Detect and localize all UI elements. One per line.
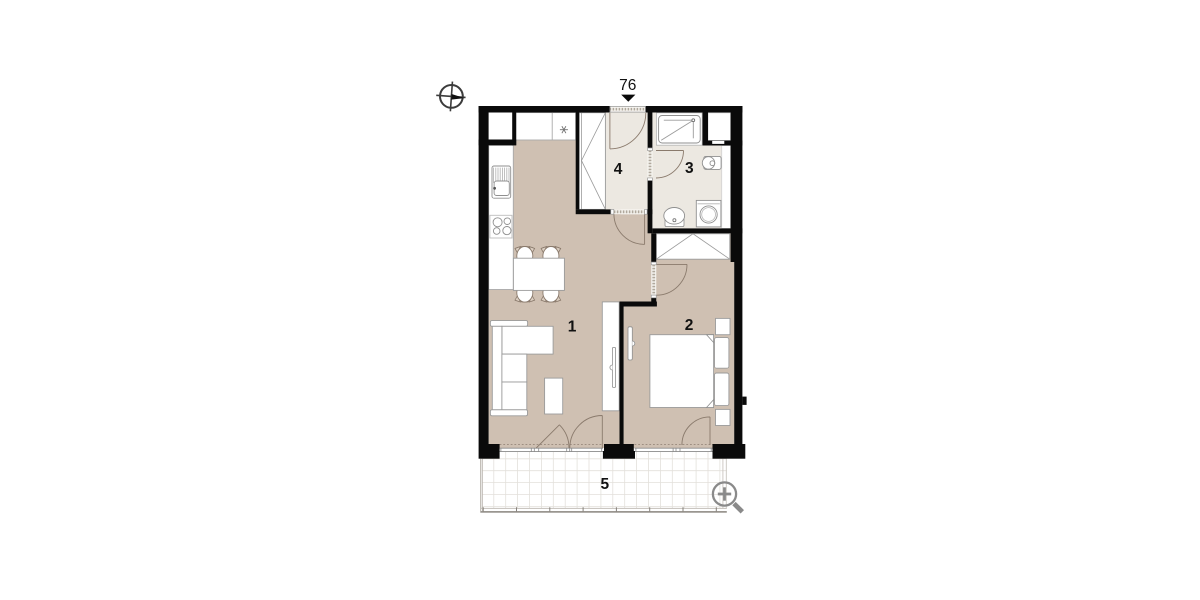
svg-text:1: 1 bbox=[568, 318, 577, 335]
svg-text:4: 4 bbox=[614, 161, 623, 178]
svg-text:76: 76 bbox=[619, 77, 636, 94]
svg-text:5: 5 bbox=[600, 476, 609, 493]
svg-text:2: 2 bbox=[685, 317, 694, 334]
svg-text:3: 3 bbox=[685, 160, 694, 177]
